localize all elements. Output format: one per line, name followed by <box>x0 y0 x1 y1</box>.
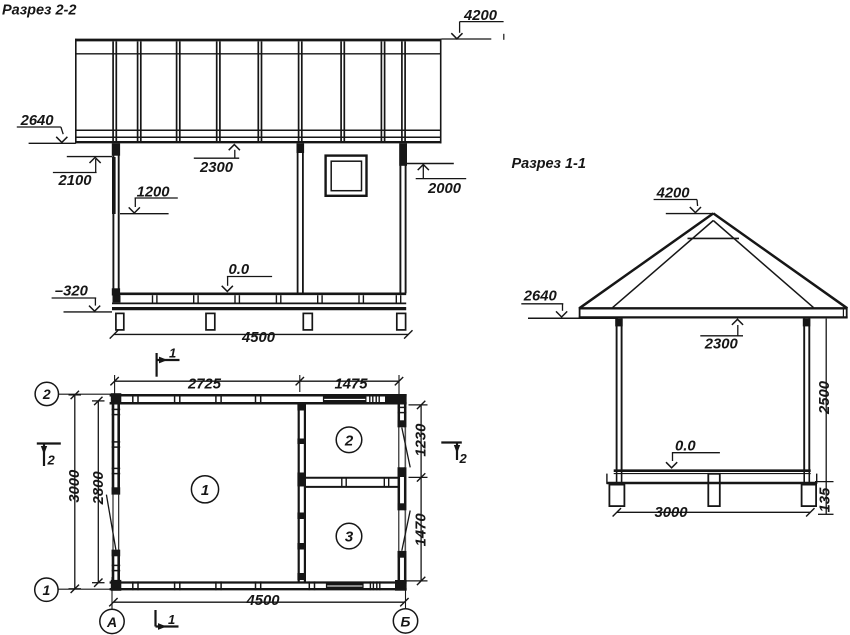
svg-text:Б: Б <box>401 613 411 629</box>
svg-text:2300: 2300 <box>199 160 234 176</box>
svg-text:4500: 4500 <box>246 593 281 609</box>
svg-text:Разрез 1-1: Разрез 1-1 <box>512 156 586 172</box>
svg-text:3000: 3000 <box>67 469 83 503</box>
svg-text:1: 1 <box>169 346 176 361</box>
svg-text:0.0: 0.0 <box>229 262 250 278</box>
svg-text:2: 2 <box>344 432 354 449</box>
svg-text:2300: 2300 <box>704 337 739 353</box>
svg-text:2000: 2000 <box>427 181 462 197</box>
svg-text:1: 1 <box>43 582 51 598</box>
svg-text:1470: 1470 <box>414 513 430 547</box>
svg-text:2725: 2725 <box>187 376 222 392</box>
svg-text:3: 3 <box>345 529 354 546</box>
svg-text:2100: 2100 <box>58 173 93 189</box>
svg-text:1: 1 <box>201 482 209 499</box>
svg-text:А: А <box>106 614 117 630</box>
svg-text:Разрез 2-2: Разрез 2-2 <box>2 3 76 19</box>
svg-text:1230: 1230 <box>414 423 430 457</box>
svg-text:1: 1 <box>168 612 175 627</box>
svg-text:1475: 1475 <box>335 376 369 392</box>
svg-text:–320: –320 <box>55 284 89 300</box>
svg-text:2800: 2800 <box>91 471 107 506</box>
svg-text:3000: 3000 <box>655 505 689 521</box>
svg-text:2: 2 <box>42 386 51 402</box>
svg-text:2: 2 <box>47 453 56 468</box>
svg-text:4500: 4500 <box>241 330 276 346</box>
svg-text:2500: 2500 <box>817 380 833 415</box>
svg-text:2640: 2640 <box>523 288 558 304</box>
svg-text:2: 2 <box>459 451 468 466</box>
svg-text:135: 135 <box>818 487 834 512</box>
